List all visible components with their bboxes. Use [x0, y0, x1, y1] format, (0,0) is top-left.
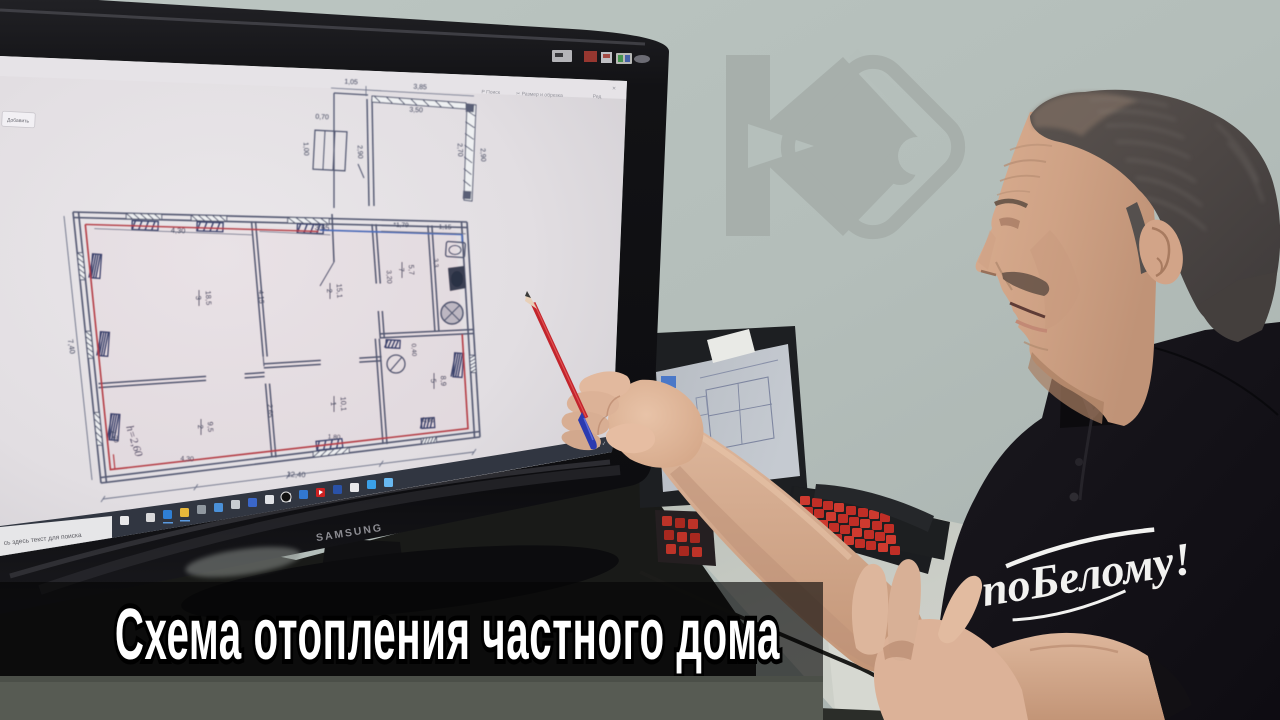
svg-text:0,40: 0,40	[410, 343, 418, 356]
svg-text:3,20: 3,20	[385, 270, 393, 284]
svg-text:18,5: 18,5	[204, 290, 214, 305]
svg-text:3: 3	[194, 296, 203, 301]
svg-text:1,00: 1,00	[422, 417, 435, 425]
svg-text:15,1: 15,1	[335, 283, 345, 298]
svg-text:2: 2	[196, 425, 205, 430]
svg-text:8,9: 8,9	[439, 375, 449, 386]
svg-text:1,05: 1,05	[344, 79, 358, 87]
svg-text:1: 1	[329, 402, 338, 407]
svg-text:4,30: 4,30	[171, 226, 186, 236]
svg-text:*1,79: *1,79	[393, 222, 409, 230]
svg-text:5: 5	[429, 379, 438, 384]
svg-text:1,80: 1,80	[328, 434, 341, 442]
svg-text:Добавить: Добавить	[7, 117, 30, 124]
svg-text:2,90: 2,90	[479, 148, 487, 162]
svg-text:10,1: 10,1	[339, 396, 349, 411]
svg-text:2: 2	[325, 289, 334, 294]
svg-text:3,50: 3,50	[409, 107, 423, 115]
svg-text:3,3: 3,3	[432, 258, 439, 268]
svg-text:1,00: 1,00	[302, 142, 310, 156]
svg-text:3,85: 3,85	[413, 84, 427, 92]
svg-text:7: 7	[397, 268, 406, 273]
svg-text:2,65: 2,65	[266, 404, 274, 418]
svg-text:5,7: 5,7	[407, 264, 417, 275]
svg-text:4,30: 4,30	[180, 456, 194, 464]
svg-text:0,70: 0,70	[315, 114, 329, 122]
svg-text:Ред: Ред	[593, 94, 602, 100]
svg-text:Р Поиск: Р Поиск	[481, 89, 501, 96]
svg-text:9,5: 9,5	[206, 421, 216, 432]
svg-text:3,65: 3,65	[315, 223, 330, 233]
svg-text:4,15: 4,15	[257, 290, 265, 304]
svg-text:✕: ✕	[612, 86, 616, 92]
svg-text:1,15: 1,15	[439, 224, 452, 231]
svg-text:2,70: 2,70	[456, 143, 464, 157]
svg-text:2,90: 2,90	[356, 145, 364, 159]
svg-text:12,40: 12,40	[287, 470, 306, 480]
svg-text:Схема отопления частного дома: Схема отопления частного дома	[115, 595, 780, 675]
